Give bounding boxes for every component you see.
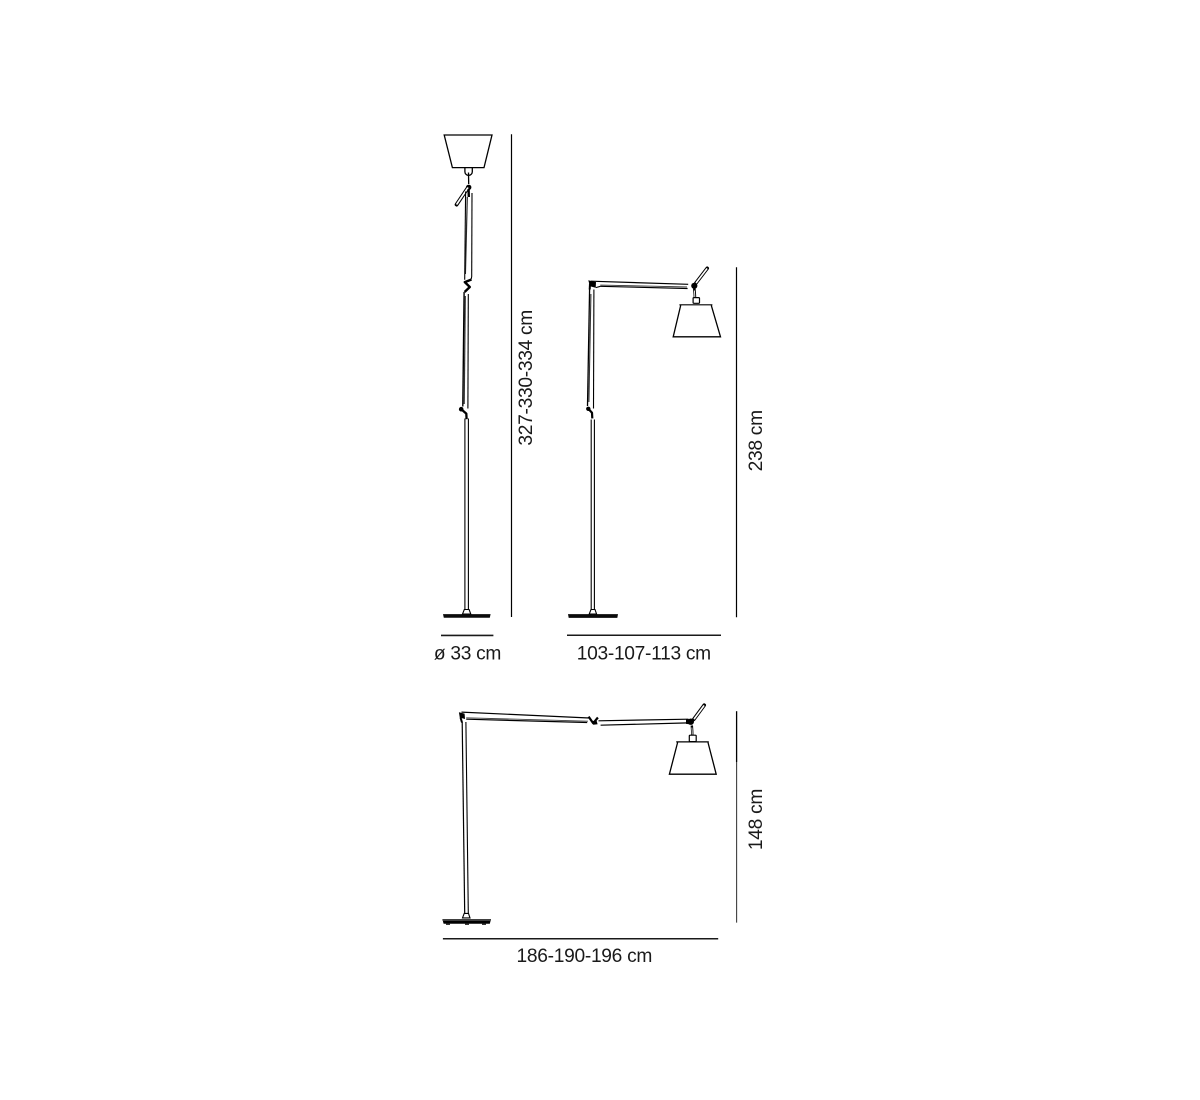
svg-text:327-330-334 cm: 327-330-334 cm <box>516 310 537 446</box>
svg-text:103-107-113 cm: 103-107-113 cm <box>577 644 711 665</box>
svg-text:148 cm: 148 cm <box>746 789 767 850</box>
svg-text:238 cm: 238 cm <box>746 410 767 471</box>
svg-text:ø 33 cm: ø 33 cm <box>434 644 501 665</box>
svg-text:186-190-196 cm: 186-190-196 cm <box>517 946 653 967</box>
